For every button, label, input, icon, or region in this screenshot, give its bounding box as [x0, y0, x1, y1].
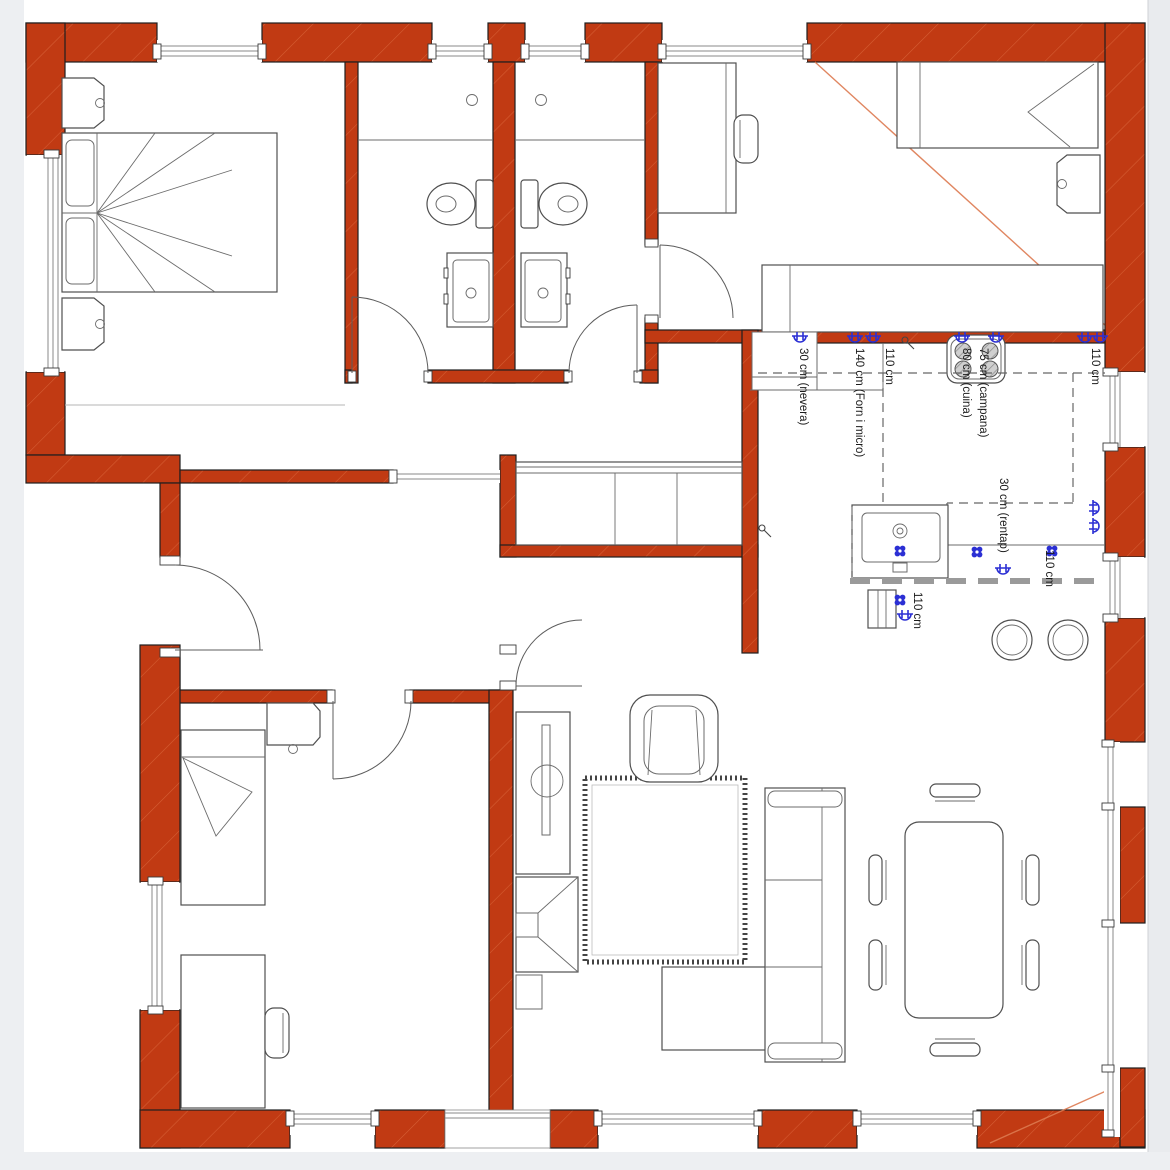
fireplace-icon	[516, 877, 578, 972]
wall-top-2	[262, 23, 432, 62]
door-bath1	[348, 297, 432, 382]
window-bath2-top	[521, 40, 589, 62]
desk	[181, 955, 265, 1108]
window-bed3-bottom	[286, 1111, 379, 1135]
dim-label-rentap: 30 cm (rentap)	[997, 478, 1009, 553]
wall-top-3	[488, 23, 525, 62]
dining-chair	[1022, 940, 1039, 990]
desk-chair	[734, 115, 758, 163]
dim-label-110-b: 110 cm	[1089, 348, 1101, 385]
window-kitchen-right-2	[1103, 553, 1144, 622]
wall-left-upper	[26, 23, 65, 155]
door-hall-living	[500, 620, 582, 690]
island-side-cabinet	[868, 590, 896, 628]
dining-area	[869, 784, 1039, 1056]
dim-label-nevera: 30 cm (nevera)	[797, 348, 809, 426]
armrest	[768, 1043, 842, 1059]
dining-chair	[869, 940, 886, 990]
wall-bed3-west-a	[140, 645, 180, 882]
room-bedroom-2	[658, 62, 1103, 332]
sink-vanity-icon	[444, 253, 493, 327]
wall-closet-west	[500, 455, 516, 557]
glass-wall-dining	[1102, 740, 1120, 1137]
wall-right-1	[1105, 23, 1145, 372]
wall-bottom-3	[550, 1110, 598, 1148]
floor-plan-drawing: 30 cm (nevera) 140 cm (Forn i micro) 110…	[0, 0, 1170, 1170]
pillow	[66, 218, 94, 284]
window-bed2-top	[658, 40, 811, 62]
living-room	[516, 695, 845, 1062]
kitchen: 30 cm (nevera) 140 cm (Forn i micro) 110…	[750, 332, 1108, 660]
window-bath1-top	[428, 40, 492, 62]
hall-closet	[516, 462, 771, 545]
kitchen-island	[850, 505, 1103, 581]
wall-hall-north-c	[640, 370, 658, 383]
glass-partition-corridor	[389, 470, 500, 483]
tv-icon	[542, 725, 550, 835]
wall-master-south	[26, 455, 180, 483]
wall-living-west	[489, 690, 513, 1112]
wall-hall-west-a	[160, 483, 180, 557]
wall-bottom-2	[375, 1110, 445, 1148]
wall-bed3-north-a	[160, 690, 332, 703]
dining-table	[905, 822, 1003, 1018]
side-cabinet	[516, 975, 542, 1009]
pillow	[66, 140, 94, 206]
wall-right-3	[1105, 618, 1145, 742]
wall-corridor-south	[180, 470, 393, 483]
wall-bottom-4	[758, 1110, 857, 1148]
dining-chair	[869, 855, 886, 905]
rug	[585, 778, 745, 962]
shower-drain-icon	[536, 95, 547, 106]
nightstand	[62, 78, 105, 128]
floor-plan-page: 30 cm (nevera) 140 cm (Forn i micro) 110…	[0, 0, 1170, 1170]
shower-drain-icon	[467, 95, 478, 106]
wall-right-4	[1120, 807, 1145, 923]
second-bed	[762, 265, 1103, 332]
bar-stool	[1048, 620, 1088, 660]
room-bathroom-1	[358, 95, 493, 328]
bottom-gutter	[0, 1152, 1170, 1170]
wall-left-mid	[26, 372, 65, 455]
door-bath2	[564, 305, 642, 382]
window-living-bottom-2	[853, 1111, 981, 1135]
room-master-bedroom	[62, 78, 345, 405]
drain-box	[893, 563, 907, 572]
single-bed	[897, 62, 1098, 148]
nightstand	[267, 703, 320, 754]
dim-label-forn: 140 cm (Forn i micro)	[853, 348, 865, 457]
dim-label-campana: 75 cm (campana)	[977, 348, 989, 438]
nightstand	[1057, 155, 1100, 213]
wall-bed3-north-b	[410, 690, 500, 703]
left-gutter	[0, 0, 24, 1170]
dim-label-110-a: 110 cm	[883, 348, 895, 385]
wall-bath-divider	[493, 62, 515, 383]
dining-chair	[930, 1039, 980, 1056]
door-bed2	[645, 239, 733, 323]
dim-label-cuina: 80 cm (cuina)	[960, 348, 972, 418]
wall-bath2-east-a	[645, 62, 658, 245]
toilet-icon	[427, 180, 493, 228]
dining-chair	[930, 784, 980, 801]
armrest	[768, 791, 842, 807]
armchair	[630, 695, 718, 782]
window-master-left	[27, 150, 64, 376]
wardrobe	[516, 462, 742, 545]
wall-hall-north-b	[428, 370, 568, 383]
wall-right-2	[1105, 447, 1145, 557]
sink-vanity-icon	[521, 253, 570, 327]
door-bed3	[327, 690, 413, 779]
wall-closet-south	[500, 545, 758, 557]
toilet-icon	[521, 180, 587, 228]
room-bathroom-2	[515, 95, 645, 328]
single-bed	[181, 730, 265, 905]
entrance-door-bottom	[445, 1110, 550, 1148]
room-bedroom-3	[181, 703, 320, 1108]
wall-bottom-1	[140, 1110, 290, 1148]
wall-right-5	[1120, 1068, 1145, 1147]
window-kitchen-right-1	[1103, 368, 1144, 451]
wall-top-right-slab	[807, 23, 1145, 62]
desk-chair	[265, 1008, 289, 1058]
desk	[658, 63, 736, 213]
tv-console	[516, 712, 570, 874]
dim-label-110-c: 110 cm	[1043, 550, 1055, 587]
right-gutter	[1148, 0, 1170, 1170]
window-master-top	[153, 40, 266, 62]
dining-chair	[1022, 855, 1039, 905]
bar-stool	[992, 620, 1032, 660]
door-master	[160, 556, 263, 657]
nightstand	[62, 298, 105, 350]
window-bed3-left	[141, 877, 179, 1014]
dim-label-110-d: 110 cm	[911, 592, 923, 629]
wall-top-4	[585, 23, 662, 62]
window-living-bottom-1	[594, 1111, 762, 1135]
